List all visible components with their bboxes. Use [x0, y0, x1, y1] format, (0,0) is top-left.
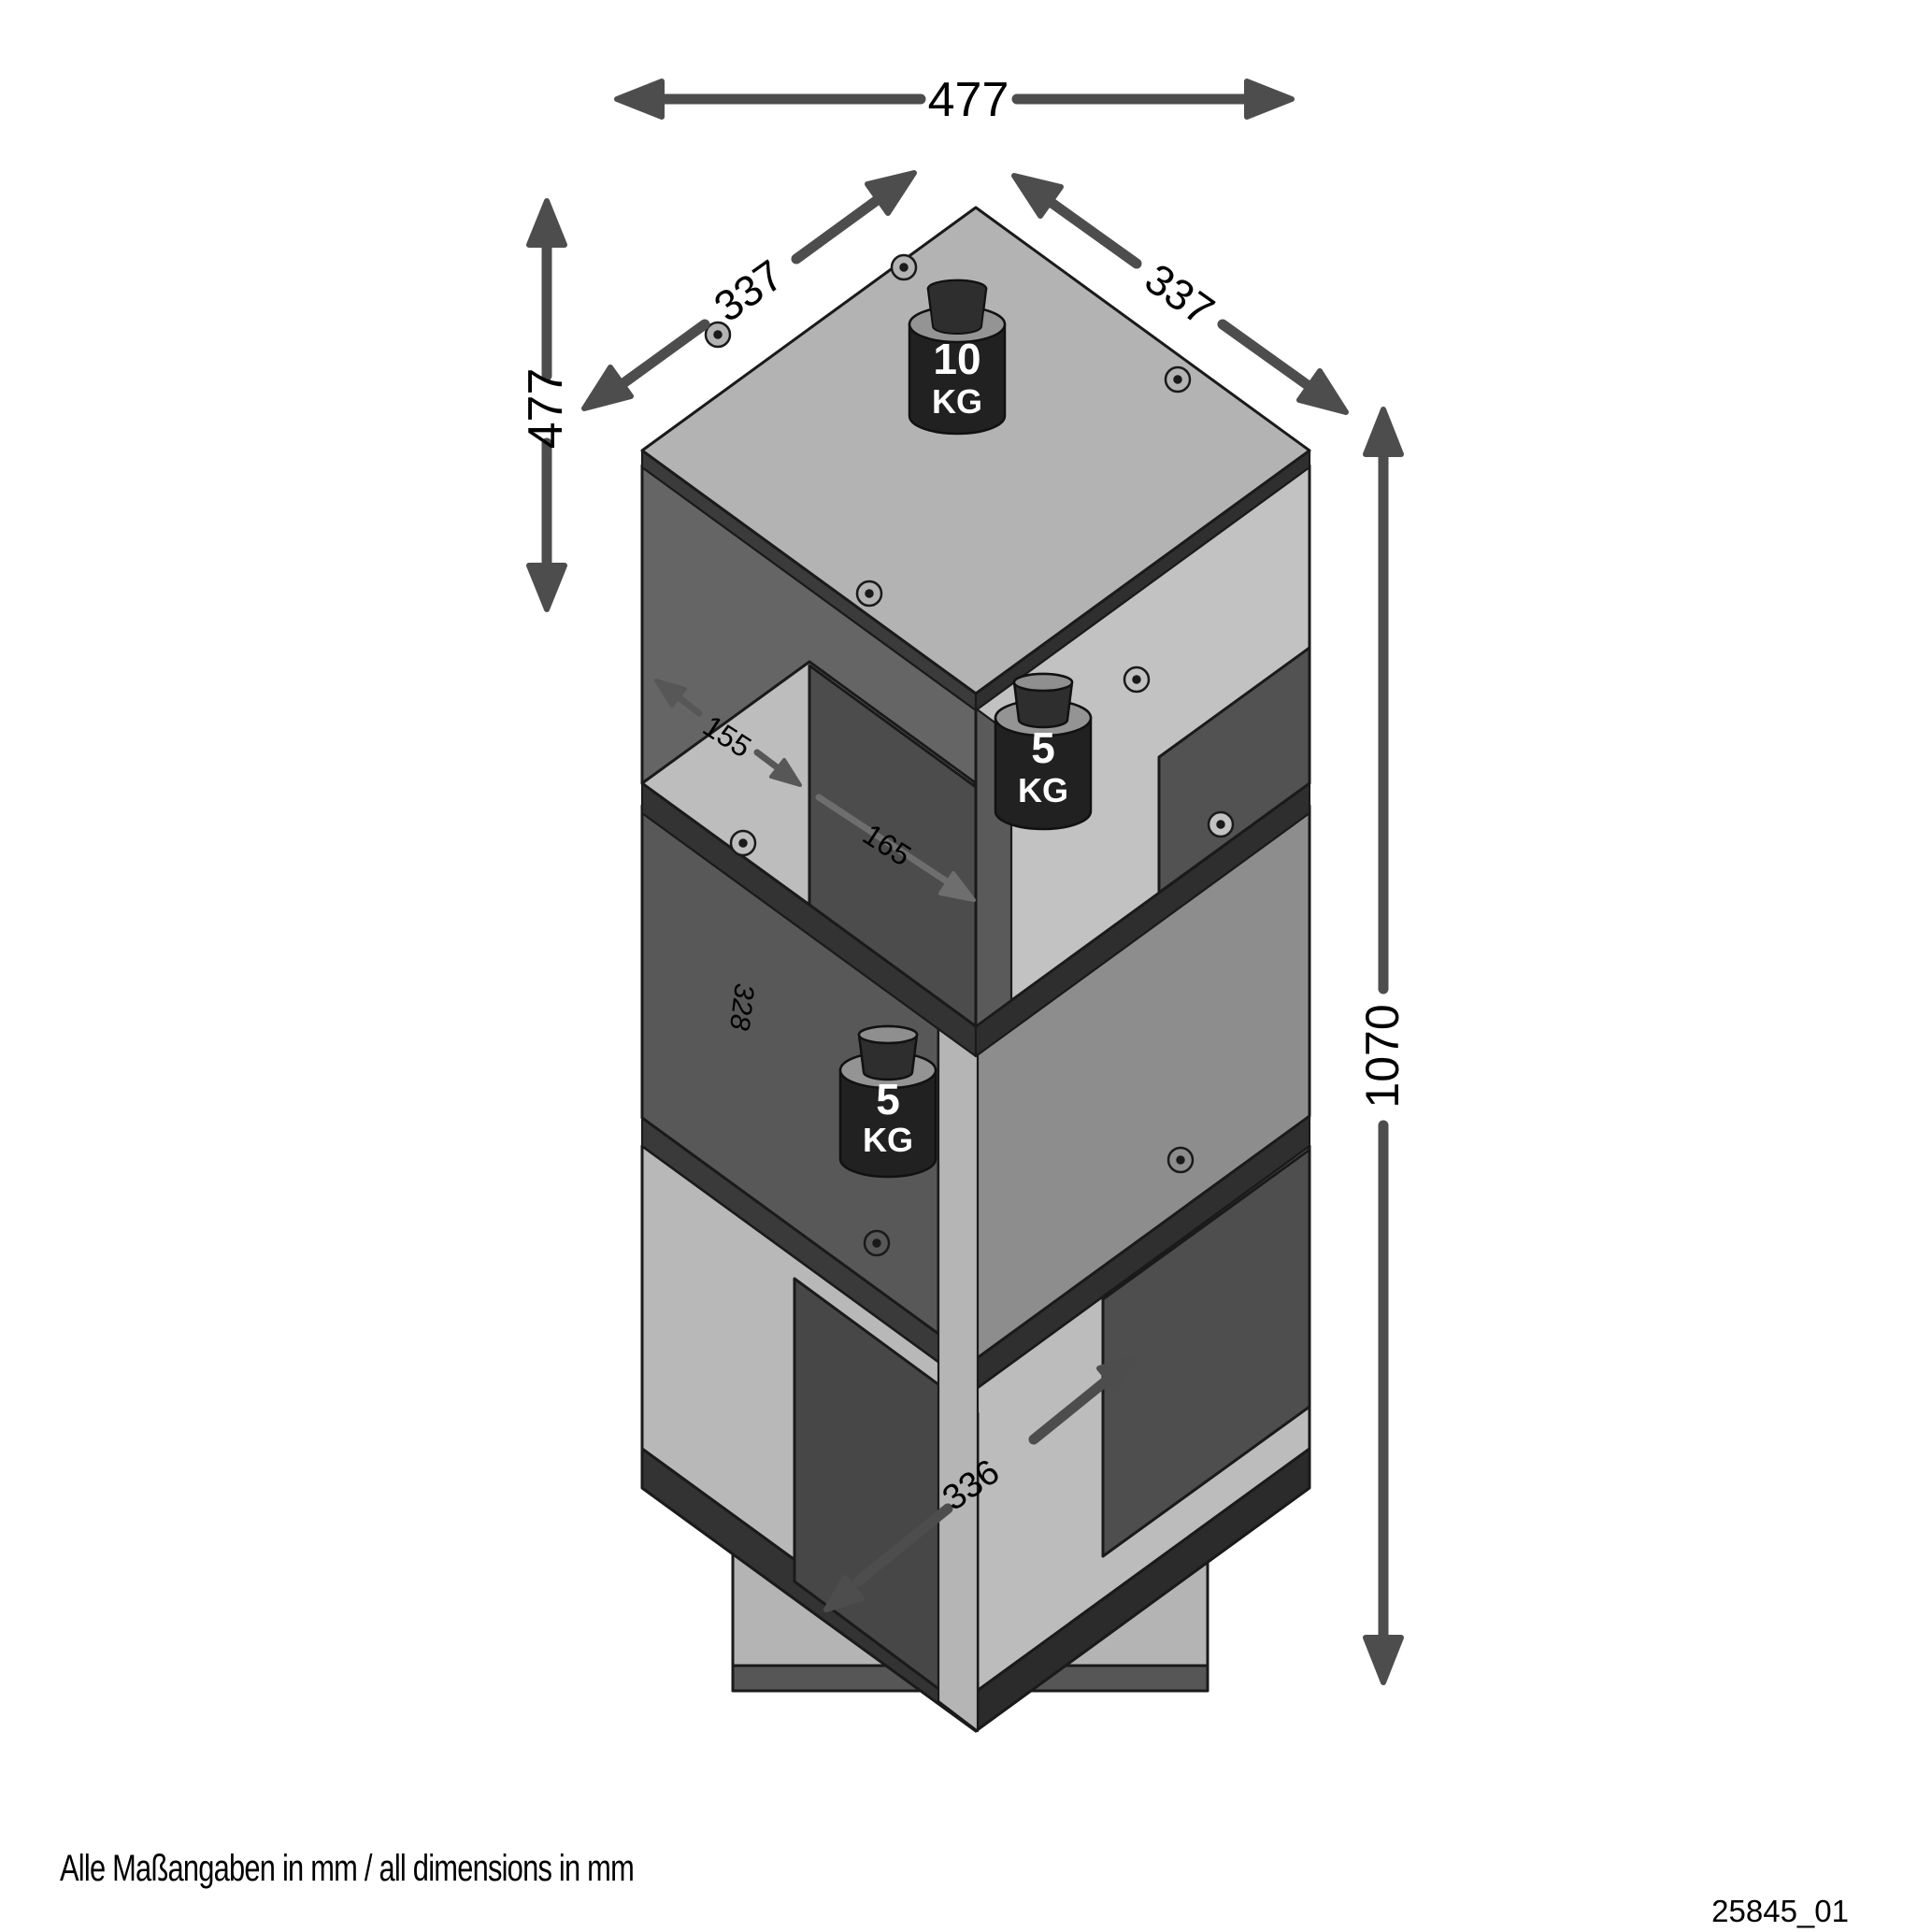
arrow-down-icon: [1366, 1638, 1401, 1682]
weight-unit-label: KG: [863, 1121, 913, 1159]
screw-icon: [1168, 1148, 1193, 1172]
screw-icon: [1124, 667, 1149, 692]
dim-label-337-left: 337: [705, 250, 792, 332]
screw-icon: [1166, 367, 1190, 392]
arrow-down-icon: [529, 565, 565, 609]
screw-icon: [731, 831, 755, 855]
dimension-top-width-477: 477: [617, 73, 1292, 127]
weight-unit-label: KG: [1018, 771, 1068, 809]
technical-drawing-canvas: 10 KG 5 KG 5 KG 477 337 337: [0, 0, 1932, 1932]
dim-label-1070: 1070: [1356, 1004, 1409, 1108]
screw-icon: [857, 581, 881, 606]
weight-value-label: 5: [876, 1075, 900, 1123]
storage-tower-diagram: 10 KG 5 KG 5 KG 477 337 337: [0, 0, 1932, 1932]
weight-value-label: 5: [1031, 723, 1055, 772]
footer-drawing-number: 25845_01: [1711, 1894, 1849, 1928]
dimension-total-height-1070: 1070: [1356, 409, 1409, 1682]
dim-label-477-left: 477: [519, 368, 573, 450]
arrow-up-icon: [529, 201, 565, 245]
dim-label-328: 328: [723, 981, 760, 1032]
arrow-up-icon: [1366, 409, 1401, 454]
weight-value-label: 10: [933, 335, 980, 383]
dim-label-337-right: 337: [1137, 254, 1224, 336]
screw-icon: [865, 1231, 889, 1255]
weight-knob: [928, 280, 986, 334]
footer-note-dimensions: Alle Maßangaben in mm / all dimensions i…: [60, 1848, 634, 1889]
tier2-front-slot-divider-edge: [938, 1022, 978, 1731]
dimension-compartment-328: 328: [723, 981, 760, 1032]
arrow-down-left-icon: [584, 367, 631, 408]
weight-knob-top: [1014, 674, 1072, 691]
screw-icon: [892, 255, 916, 279]
dimension-left-height-477: 477: [519, 201, 573, 609]
arrow-right-icon: [1247, 81, 1292, 117]
screw-icon: [1209, 812, 1233, 837]
weight-knob-top: [859, 1026, 917, 1043]
dim-label-477-top: 477: [928, 73, 1009, 127]
arrow-left-icon: [617, 81, 662, 117]
weight-unit-label: KG: [932, 382, 982, 421]
arrow-down-right-icon: [1299, 371, 1346, 412]
